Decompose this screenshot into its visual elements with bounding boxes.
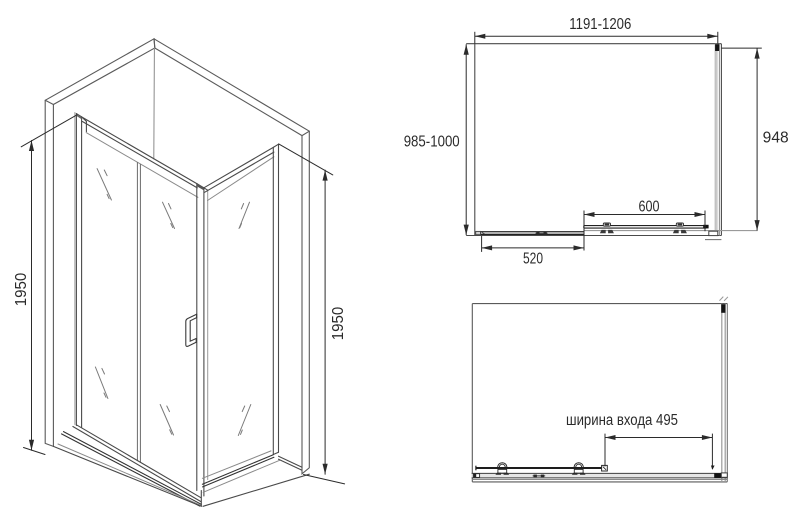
svg-text:985-1000: 985-1000 [404,133,460,150]
svg-text:1950: 1950 [330,306,347,340]
svg-text:1950: 1950 [13,272,30,306]
svg-text:1191-1206: 1191-1206 [569,16,631,33]
svg-text:ширина входа 495: ширина входа 495 [566,412,678,429]
svg-text:600: 600 [639,199,660,216]
svg-text:948: 948 [763,130,789,147]
svg-text:520: 520 [523,250,543,267]
